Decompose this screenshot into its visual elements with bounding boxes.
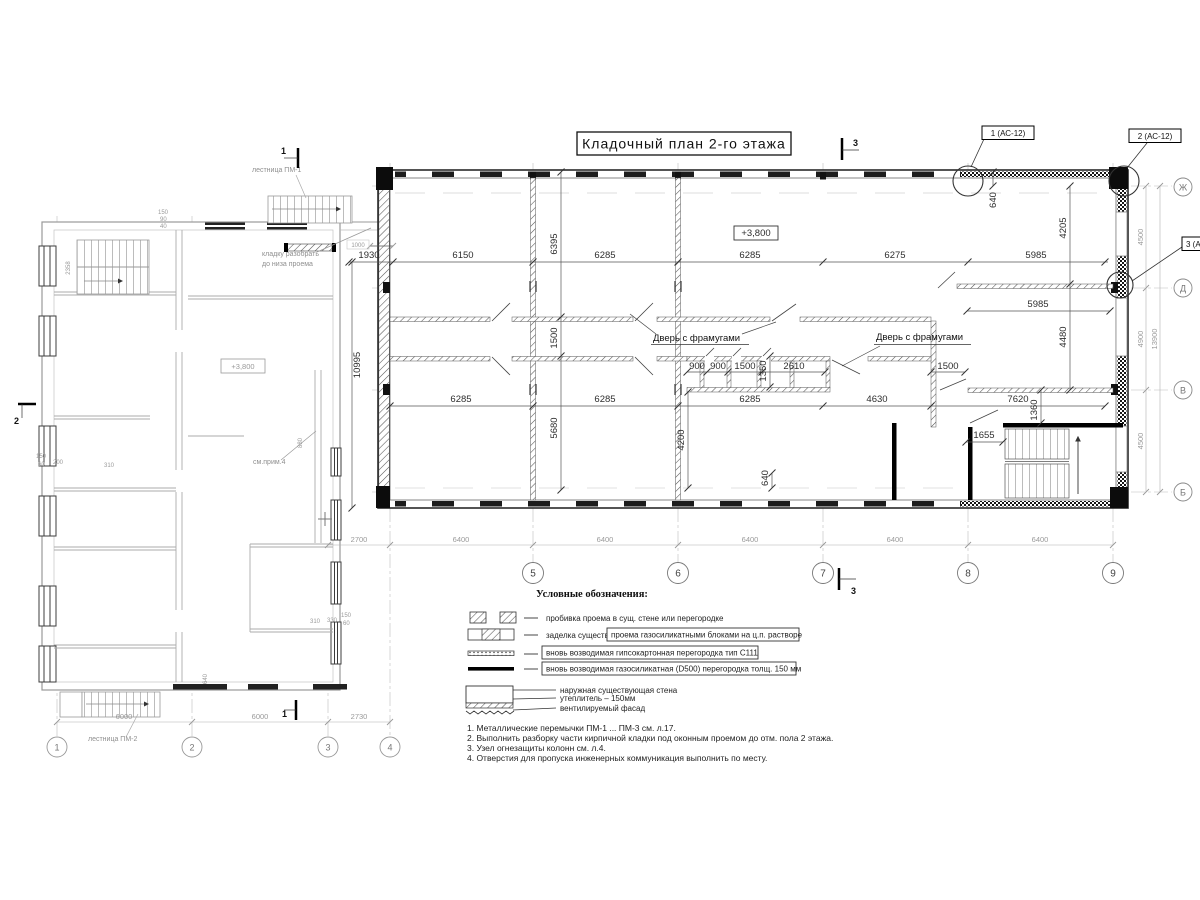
axis-bubble: 4 [380, 737, 400, 757]
axis-bubble: 1 [47, 737, 67, 757]
level-mark-left: +3,800 [221, 359, 265, 373]
legend-item-text: проема газосиликатными блоками на ц.п. р… [611, 631, 803, 640]
annotation-text: см.прим.4 [253, 459, 286, 466]
dim-label: 6395 [549, 233, 560, 254]
right-wall-windows [1116, 212, 1127, 472]
dim-label: 640 [988, 192, 999, 208]
dim-label: 13900 [1150, 329, 1159, 350]
dim-label: 6000 [116, 712, 133, 721]
dim-label: 6400 [597, 535, 614, 544]
legend-item-text: пробивка проема в сущ. стене или перегор… [546, 614, 724, 623]
dim-label: 200 [53, 460, 64, 466]
dim-label: 310 [310, 619, 321, 625]
stair-label: лестница ПМ-1 [252, 167, 302, 174]
section-number: 3 [853, 138, 858, 148]
annotation-text: до низа проема [262, 261, 313, 268]
legend-item-text: утеплитель – 150мм [560, 694, 635, 703]
legend-row: вновь возводимая гипсокартонная перегоро… [468, 646, 758, 659]
dim-label: 330 [327, 618, 338, 624]
dim-label: 150 [341, 613, 352, 619]
dim-label: 5985 [1027, 299, 1048, 310]
axis-bubble: 9 [1103, 563, 1124, 584]
detail-tag-text: 3 (АС-12) [1186, 240, 1200, 249]
dim-label: 6285 [739, 394, 760, 405]
dim-label: 2730 [351, 712, 368, 721]
dim-label: 60 [38, 462, 45, 468]
dim-label: 4200 [676, 429, 687, 450]
level-mark-main: +3,800 [734, 226, 778, 240]
top-wall-insulated [961, 172, 1116, 178]
dim-label: 1350 [758, 360, 769, 381]
dim-label: 900 [689, 361, 705, 372]
dim-label: 1500 [937, 361, 958, 372]
dim-label: 10995 [352, 352, 363, 378]
axis-bubble: Ж [1174, 178, 1192, 196]
dim-label: 310 [104, 463, 115, 469]
page-title: Кладочный план 2-го этажа [582, 136, 786, 152]
left-building [39, 196, 378, 717]
axis-label: 3 [325, 743, 330, 753]
dim-label: 6400 [742, 535, 759, 544]
dim-label: 6400 [1032, 535, 1049, 544]
axis-label: 2 [189, 743, 194, 753]
dim-label: 880 [298, 437, 304, 448]
left-wall-brick [379, 178, 390, 500]
dim-label: 7620 [1007, 394, 1028, 405]
legend-title: Условные обозначения: [536, 589, 648, 600]
dim-label: 6285 [594, 394, 615, 405]
dim-label: 1000 [351, 243, 365, 249]
dim-label: 4500 [1136, 433, 1145, 450]
dim-label: 4480 [1058, 326, 1069, 347]
legend-row: заделка существ. проема газосиликатными … [468, 628, 803, 641]
dim-label: 6000 [252, 712, 269, 721]
legend: Условные обозначения: пробивка проема в … [466, 589, 803, 714]
door-label-text: Дверь с фрамугами [876, 332, 963, 343]
dim-label: 2610 [783, 361, 804, 372]
axis-bubble: 7 [813, 563, 834, 584]
door-label-text: Дверь с фрамугами [653, 333, 740, 344]
legend-item-text: вновь возводимая газосиликатная (D500) п… [546, 665, 801, 674]
stair-pm1 [268, 196, 352, 223]
axis-label: 4 [387, 743, 392, 753]
axis-label: Д [1180, 284, 1186, 294]
dim-label: 1655 [973, 430, 994, 441]
dim-label: 900 [710, 361, 726, 372]
annotation-text: кладку разобрать [262, 250, 319, 258]
axis-label: 7 [820, 569, 826, 580]
stair-pm2 [60, 692, 160, 717]
axis-bubble: 2 [182, 737, 202, 757]
legend-row: пробивка проема в сущ. стене или перегор… [470, 612, 724, 623]
axis-bubble: 3 [318, 737, 338, 757]
section-number: 2 [14, 416, 19, 426]
detail-tag-text: 1 (АС-12) [991, 129, 1026, 138]
dim-label: 4205 [1058, 217, 1069, 238]
dim-label: 90 [160, 217, 167, 223]
dim-label: 2358 [66, 261, 72, 275]
axis-bubble: 5 [523, 563, 544, 584]
dim-label: 5680 [549, 417, 560, 438]
dim-label: 6285 [739, 250, 760, 261]
dim-label: 5985 [1025, 250, 1046, 261]
dim-label: 1360 [1029, 399, 1040, 420]
axis-label: 5 [530, 569, 536, 580]
legend-item-text: заделка существ. [546, 631, 611, 640]
axis-label: В [1180, 386, 1186, 396]
axis-bubble: Б [1174, 483, 1192, 501]
dim-label: 2700 [351, 535, 368, 544]
section-number: 3 [851, 586, 856, 596]
level-value: +3,800 [741, 228, 770, 239]
dim-label: 640 [203, 673, 209, 684]
dim-label: 60 [343, 621, 350, 627]
note-line: 4. Отверстия для пропуска инженерных ком… [467, 753, 767, 763]
dim-label: 6400 [453, 535, 470, 544]
dim-label: 150 [36, 454, 47, 460]
detail-tag-text: 2 (АС-12) [1138, 132, 1173, 141]
legend-item-text: вновь возводимая гипсокартонная перегоро… [546, 649, 758, 658]
legend-row: вновь возводимая газосиликатная (D500) п… [468, 662, 801, 675]
legend-item-text: вентилируемый фасад [560, 704, 645, 713]
dim-label: 6285 [450, 394, 471, 405]
axis-label: 8 [965, 569, 971, 580]
stair-label: лестница ПМ-2 [88, 736, 138, 743]
axis-bubble: 8 [958, 563, 979, 584]
infill-wall [287, 244, 332, 251]
axis-bubble: 6 [668, 563, 689, 584]
drawing-title: Кладочный план 2-го этажа [577, 132, 791, 155]
level-value: +3,800 [231, 362, 254, 371]
floor-plan-drawing: 1930 6150 6285 6285 6275 5985 5985 6285 … [0, 0, 1200, 900]
dim-label: 4500 [1136, 229, 1145, 246]
notes: 1. Металлические перемычки ПМ-1 ... ПМ-3… [467, 723, 833, 763]
axis-label: 6 [675, 569, 681, 580]
bottom-wall-windows [395, 501, 961, 507]
section-number: 1 [281, 146, 286, 156]
dim-label: 1500 [734, 361, 755, 372]
main-building [376, 167, 1128, 508]
axis-label: Б [1180, 488, 1186, 498]
stair-internal [77, 240, 149, 294]
dim-label: 6400 [887, 535, 904, 544]
note-line: 2. Выполнить разборку части кирпичной кл… [467, 733, 833, 743]
dim-label: 6285 [594, 250, 615, 261]
dim-label: 4900 [1136, 331, 1145, 348]
section-number: 1 [282, 709, 287, 719]
note-line: 3. Узел огнезащиты колонн см. л.4. [467, 743, 606, 753]
axis-bubble: Д [1174, 279, 1192, 297]
dim-label: 4630 [866, 394, 887, 405]
axis-label: 1 [54, 743, 59, 753]
dim-label: 1500 [549, 327, 560, 348]
dim-label: 1930 [358, 250, 379, 261]
detail-tag: 2 (АС-12) [1129, 129, 1181, 143]
legend-row: наружная существующая стена утеплитель –… [466, 686, 678, 714]
axis-bubble: В [1174, 381, 1192, 399]
dim-label: 640 [760, 470, 771, 486]
axis-label: Ж [1179, 183, 1188, 193]
detail-tag: 1 (АС-12) [982, 126, 1034, 140]
window [173, 684, 347, 690]
axis-label: 9 [1110, 569, 1116, 580]
bottom-wall-insulated [961, 501, 1113, 507]
detail-tag: 3 (АС-12) [1182, 237, 1200, 251]
dim-label: 40 [160, 224, 167, 230]
dim-label: 150 [158, 210, 169, 216]
dim-label: 6275 [884, 250, 905, 261]
dim-label: 6150 [452, 250, 473, 261]
note-line: 1. Металлические перемычки ПМ-1 ... ПМ-3… [467, 723, 676, 733]
